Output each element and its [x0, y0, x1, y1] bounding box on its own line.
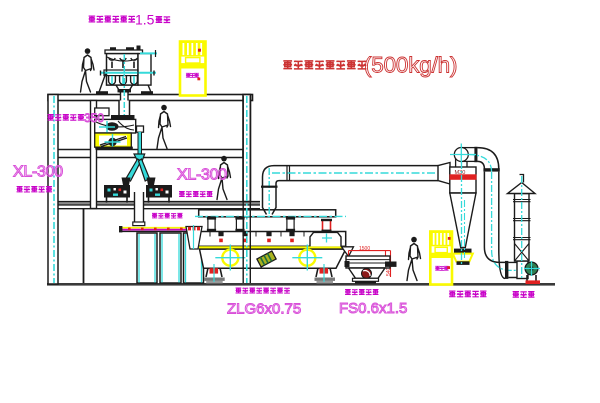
svg-text:XL-300: XL-300 [177, 167, 227, 184]
svg-text:350: 350 [84, 111, 104, 125]
svg-text:XL-300: XL-300 [13, 164, 63, 181]
svg-text:1.5: 1.5 [135, 12, 155, 28]
svg-text:540: 540 [386, 267, 392, 276]
svg-text:(500kg/h): (500kg/h) [364, 53, 457, 78]
svg-text:1500: 1500 [359, 246, 370, 252]
svg-text:ZLG6x0.75: ZLG6x0.75 [227, 301, 301, 318]
svg-text:FS0.6x1.5: FS0.6x1.5 [339, 300, 407, 317]
svg-text:M30: M30 [455, 170, 466, 176]
